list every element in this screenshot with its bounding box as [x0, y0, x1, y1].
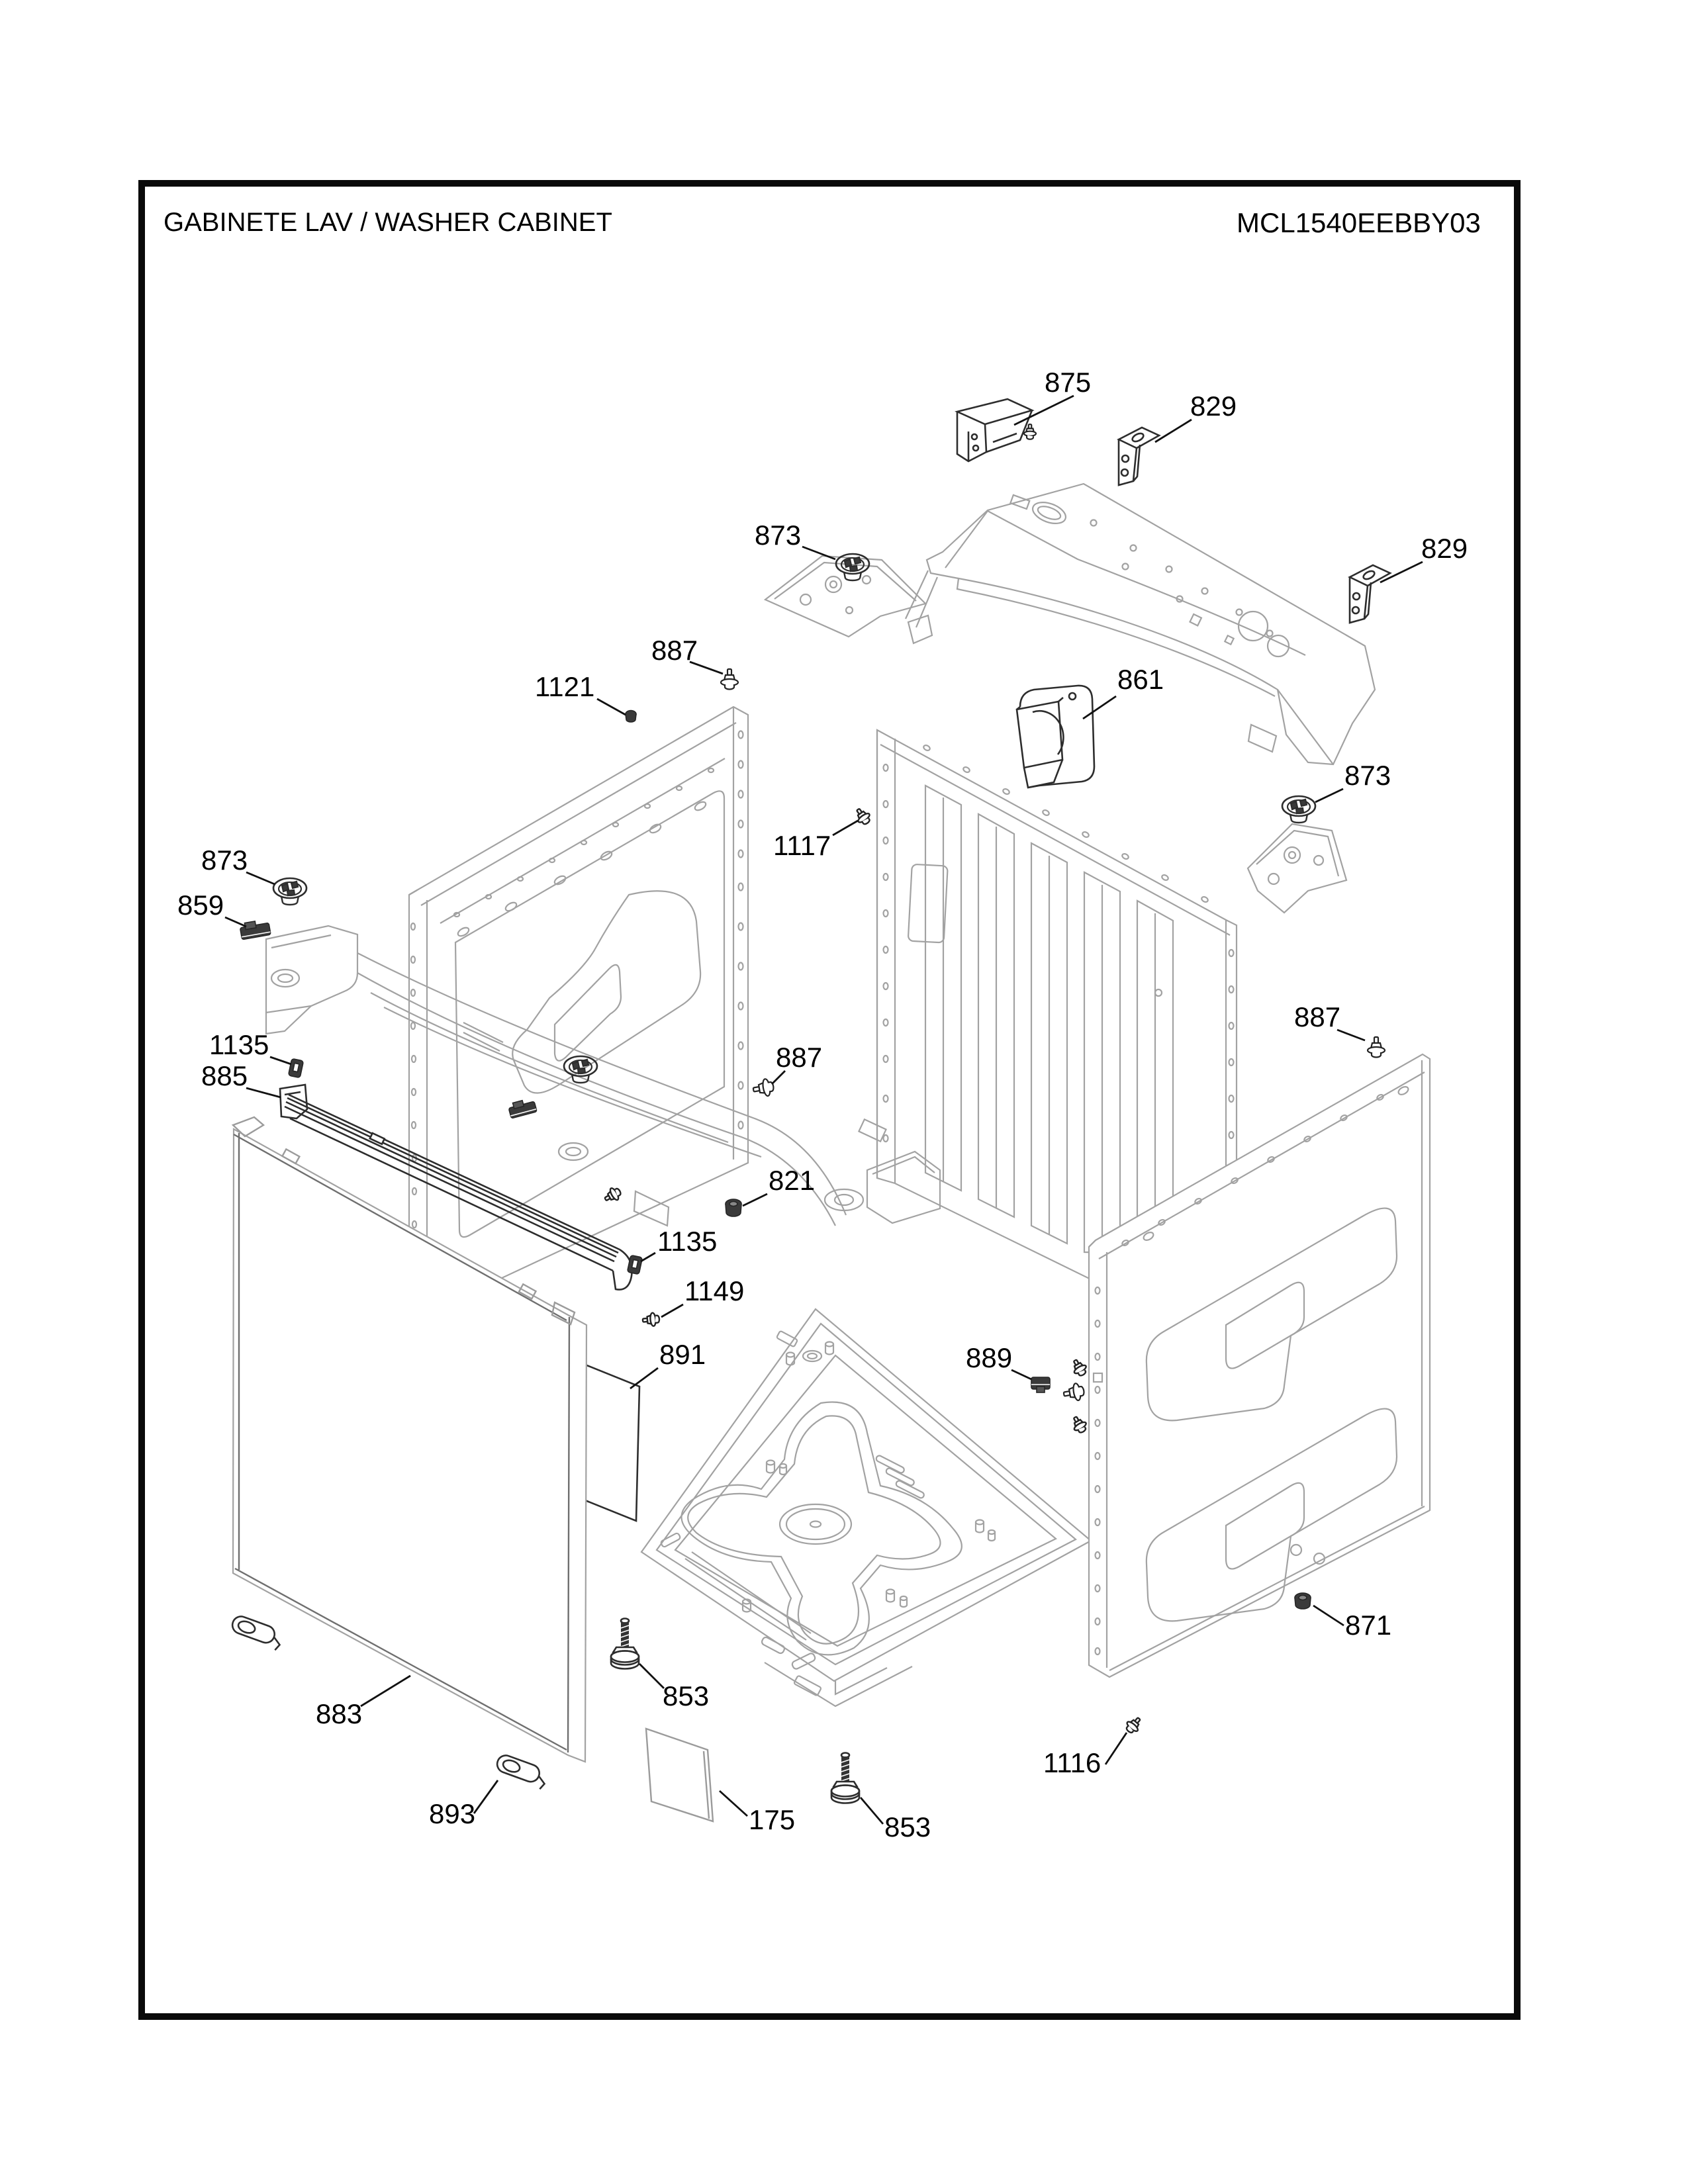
svg-text:GABINETE LAV / WASHER CABINET: GABINETE LAV / WASHER CABINET	[164, 208, 612, 237]
svg-text:893: 893	[429, 1798, 475, 1829]
svg-text:1135: 1135	[657, 1226, 717, 1257]
svg-text:853: 853	[884, 1811, 931, 1843]
svg-text:861: 861	[1117, 664, 1164, 695]
svg-text:883: 883	[316, 1698, 362, 1729]
svg-text:1117: 1117	[773, 830, 831, 861]
svg-text:889: 889	[966, 1342, 1012, 1373]
svg-text:873: 873	[755, 520, 801, 551]
svg-text:871: 871	[1345, 1610, 1391, 1641]
svg-text:1116: 1116	[1043, 1747, 1101, 1778]
svg-text:887: 887	[651, 635, 698, 666]
svg-text:873: 873	[1344, 760, 1391, 791]
svg-text:891: 891	[659, 1339, 706, 1370]
svg-text:MCL1540EEBBY03: MCL1540EEBBY03	[1237, 207, 1481, 238]
svg-text:175: 175	[749, 1804, 795, 1835]
svg-text:873: 873	[201, 844, 248, 876]
svg-text:885: 885	[201, 1060, 248, 1091]
svg-text:859: 859	[177, 889, 224, 921]
svg-text:821: 821	[769, 1165, 815, 1196]
svg-text:1135: 1135	[209, 1029, 269, 1060]
svg-text:1149: 1149	[684, 1275, 744, 1306]
svg-text:887: 887	[776, 1042, 822, 1073]
svg-text:875: 875	[1045, 367, 1091, 398]
svg-text:829: 829	[1190, 390, 1237, 422]
svg-text:853: 853	[663, 1680, 709, 1711]
svg-text:1121: 1121	[535, 671, 594, 702]
svg-text:887: 887	[1294, 1001, 1340, 1032]
svg-text:829: 829	[1421, 533, 1468, 564]
